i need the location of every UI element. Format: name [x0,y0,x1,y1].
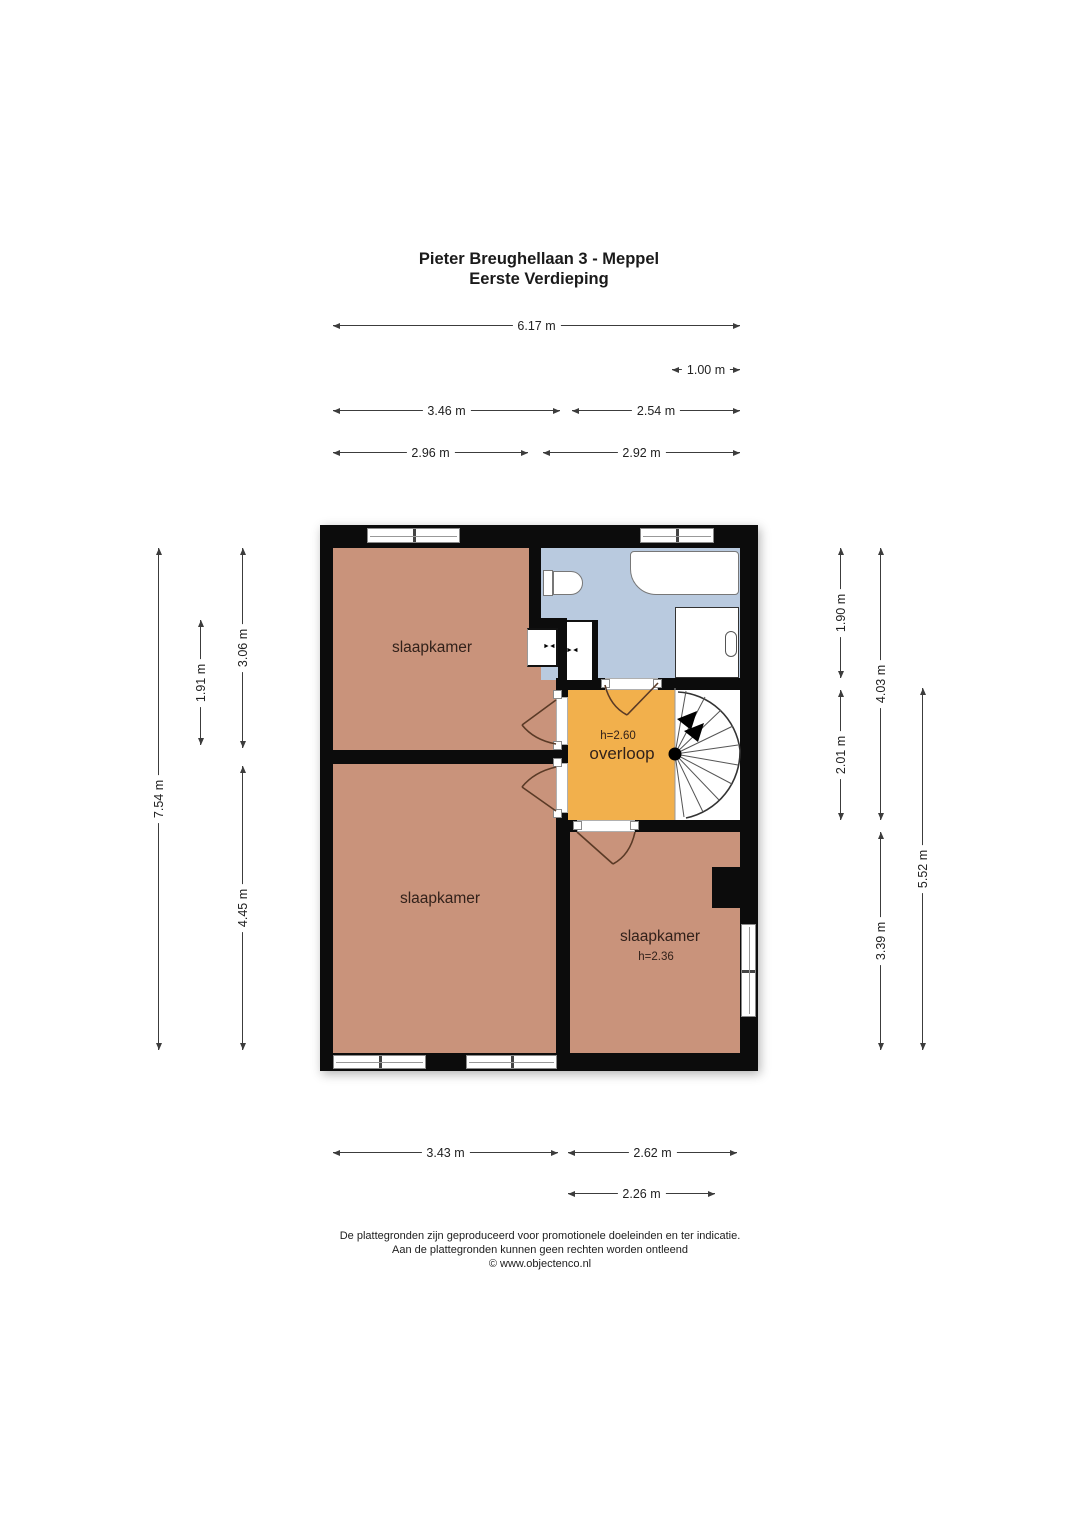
dim-label: 4.03 m [874,660,888,708]
disclaimer: De plattegronden zijn geproduceerd voor … [0,1229,1080,1271]
dim-right-bedroom3: 3.39 m [880,832,881,1050]
disclaimer-line1: De plattegronden zijn geproduceerd voor … [0,1229,1080,1243]
door-arc-bathroom [605,685,627,715]
door-arc-bedroom2 [522,767,556,787]
dim-label: 3.43 m [421,1146,469,1160]
stair-outer-edge [678,692,740,818]
dim-label: 6.17 m [512,319,560,333]
dim-top-stairs: 1.00 m [672,369,740,370]
dim-label: 4.45 m [236,884,250,932]
stair-newel-post [669,748,682,761]
door-swings [522,683,658,864]
dim-top-total: 6.17 m [333,325,740,326]
dim-top-right-section: 2.54 m [572,410,740,411]
floor-plan: ►◄ ►◄ [320,525,758,1071]
title-floor: Eerste Verdieping [320,269,758,289]
door-leaf-bedroom1 [522,700,556,725]
dim-label: 1.90 m [834,589,848,637]
spiral-staircase [669,688,741,820]
door-arc-bedroom3 [613,832,635,864]
label-bedroom-bottom-right: slaapkamer [620,928,700,946]
doors-and-stairs-overlay [320,525,758,1071]
dim-left-bedroom2: 4.45 m [242,766,243,1050]
dim-right-lower: 5.52 m [922,688,923,1050]
disclaimer-line2: Aan de plattegronden kunnen geen rechten… [0,1243,1080,1257]
dim-label: 2.01 m [834,731,848,779]
dim-bottom-bedroom3-inner: 2.26 m [568,1193,715,1194]
door-leaf-bedroom3 [577,832,613,864]
door-arc-bedroom1 [522,725,556,744]
dim-label: 2.96 m [406,446,454,460]
dim-top-left-section: 3.46 m [333,410,560,411]
dim-left-bedroom1: 3.06 m [242,548,243,748]
label-landing: overloop [589,744,654,764]
dim-top-bedroom1: 2.96 m [333,452,528,453]
dim-label: 3.39 m [874,917,888,965]
label-bedroom-top-left: slaapkamer [392,639,472,657]
dim-left-total: 7.54 m [158,548,159,1050]
label-bedroom-bottom-left: slaapkamer [400,890,480,908]
dim-label: 2.26 m [617,1187,665,1201]
copyright: © www.objectenco.nl [0,1257,1080,1271]
dim-label: 3.46 m [422,404,470,418]
label-bedroom3-height: h=2.36 [638,951,674,963]
dim-bottom-bedroom3: 2.62 m [568,1152,737,1153]
door-leaf-bedroom2 [522,787,556,811]
dim-label: 1.00 m [682,363,730,377]
label-landing-height: h=2.60 [600,730,636,742]
dim-right-landing: 2.01 m [840,690,841,820]
dim-right-bathroom: 1.90 m [840,548,841,678]
dim-top-bathroom: 2.92 m [543,452,740,453]
plan-title: Pieter Breughellaan 3 - Meppel Eerste Ve… [320,249,758,289]
title-address: Pieter Breughellaan 3 - Meppel [320,249,758,269]
dim-label: 1.91 m [194,658,208,706]
dim-label: 5.52 m [916,845,930,893]
door-leaf-bathroom [627,683,658,715]
dim-label: 3.06 m [236,624,250,672]
dim-bottom-bedroom2: 3.43 m [333,1152,558,1153]
dim-left-closet: 1.91 m [200,620,201,745]
dim-label: 2.54 m [632,404,680,418]
dim-label: 2.62 m [628,1146,676,1160]
dim-label: 2.92 m [617,446,665,460]
dim-label: 7.54 m [152,775,166,823]
dim-right-upper: 4.03 m [880,548,881,820]
